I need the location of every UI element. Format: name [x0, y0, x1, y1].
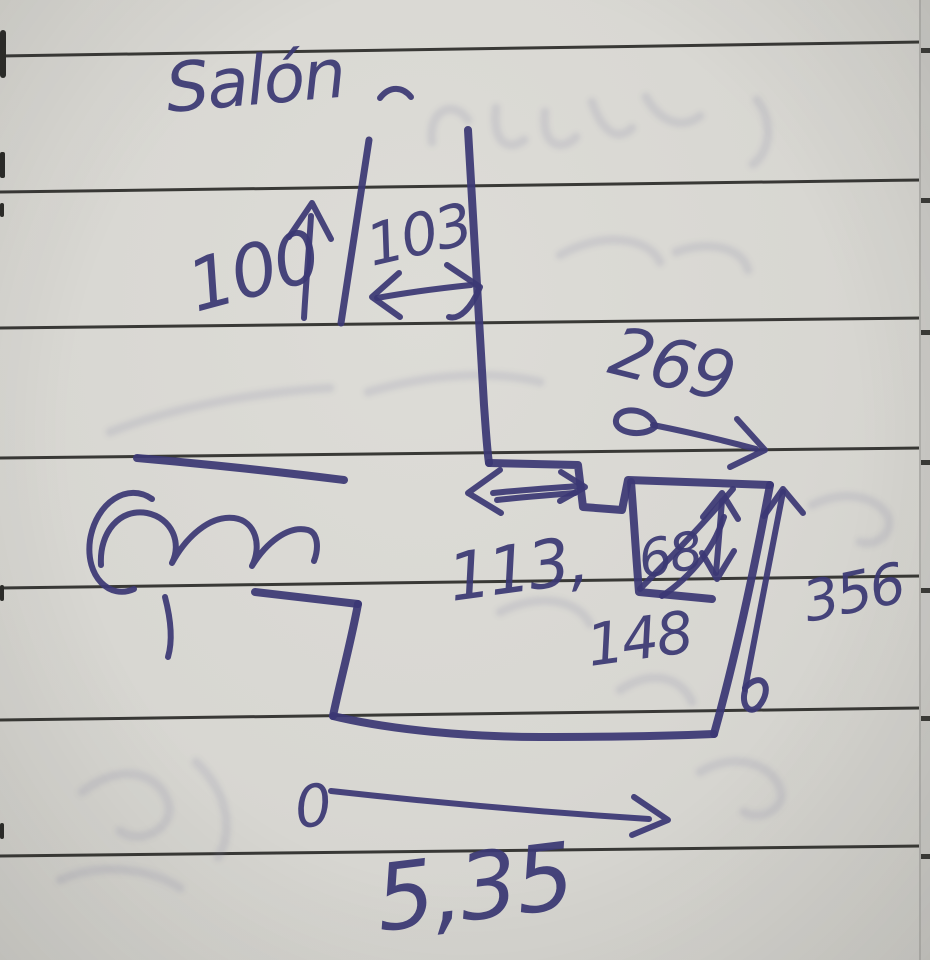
- ghost-mark: [700, 761, 781, 815]
- arrow-269-tail-loop: [616, 410, 655, 433]
- right-edge-strip: [921, 0, 930, 960]
- right-edge-tick: [921, 198, 930, 203]
- wall-step-vertical: [333, 604, 358, 716]
- right-edge-tick: [921, 460, 930, 465]
- scribble-loop: [89, 493, 152, 592]
- dimension-origin-zero: 0: [291, 771, 333, 842]
- dimension-label-356: 356: [797, 551, 910, 636]
- left-edge-mark: [0, 152, 5, 178]
- right-edge-tick: [921, 330, 930, 335]
- ruled-line: [0, 42, 921, 56]
- right-edge-tick: [921, 48, 930, 53]
- sketch-canvas: Salón 100 103 269 113, 68 148 356 0 5,35: [0, 0, 930, 960]
- right-edge-tick: [921, 854, 930, 859]
- arrow-269-shaft: [653, 425, 756, 449]
- paper-left-edge: [0, 30, 6, 839]
- ruled-line: [0, 708, 921, 720]
- left-edge-mark: [0, 823, 4, 839]
- dimension-label-total: 5,35: [370, 823, 578, 953]
- dimension-label-103: 103: [360, 190, 477, 280]
- dimension-label-269: 269: [602, 312, 741, 419]
- ghost-mark: [812, 496, 889, 543]
- dimension-label-148: 148: [582, 598, 695, 680]
- dimension-label-68: 68: [634, 521, 706, 591]
- wall-step-horizontal: [255, 592, 358, 604]
- ghost-mark: [432, 97, 768, 164]
- ghost-mark: [60, 762, 227, 888]
- furniture-scribble: [89, 493, 317, 657]
- wall-bottom: [333, 716, 714, 737]
- salon-flourish: [380, 89, 411, 98]
- ghost-mark: [560, 240, 748, 270]
- left-edge-mark: [0, 30, 6, 78]
- arrow-356-end-loop: [744, 680, 766, 710]
- notebook-page: Salón 100 103 269 113, 68 148 356 0 5,35: [0, 0, 930, 960]
- left-edge-mark: [0, 203, 4, 217]
- paper-right-edge: [920, 0, 930, 960]
- right-edge-tick: [921, 716, 930, 721]
- ruled-line: [0, 318, 921, 328]
- room-title: Salón: [163, 35, 348, 129]
- ghost-mark: [110, 375, 540, 432]
- wall-top-left-segment: [137, 458, 344, 480]
- scribble-bumps: [101, 512, 317, 566]
- scribble-tail: [165, 597, 171, 657]
- left-edge-mark: [0, 585, 4, 601]
- arrow-103-shaft: [377, 285, 471, 298]
- arrow-total-shaft: [331, 791, 649, 819]
- right-edge-tick: [921, 588, 930, 593]
